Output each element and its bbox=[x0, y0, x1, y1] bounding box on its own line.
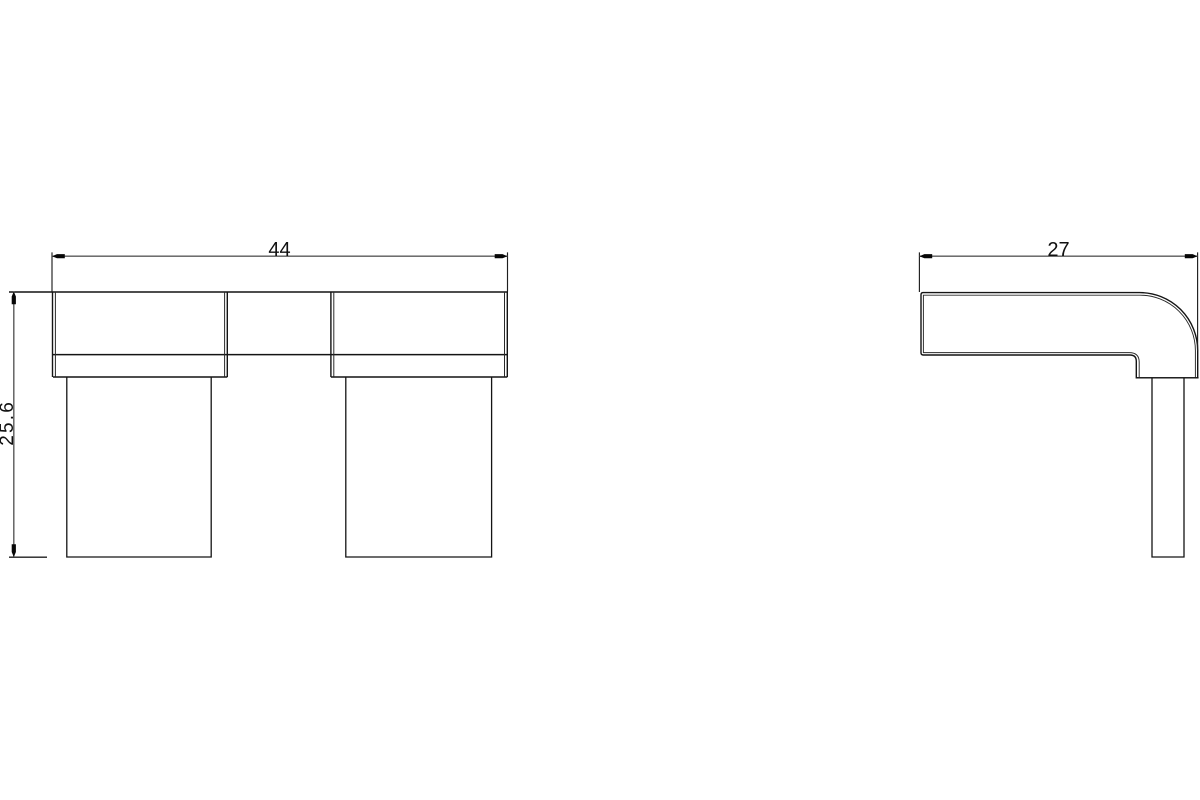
svg-text:27: 27 bbox=[1047, 239, 1069, 261]
svg-text:44: 44 bbox=[268, 239, 290, 261]
svg-text:25.6: 25.6 bbox=[0, 400, 18, 446]
